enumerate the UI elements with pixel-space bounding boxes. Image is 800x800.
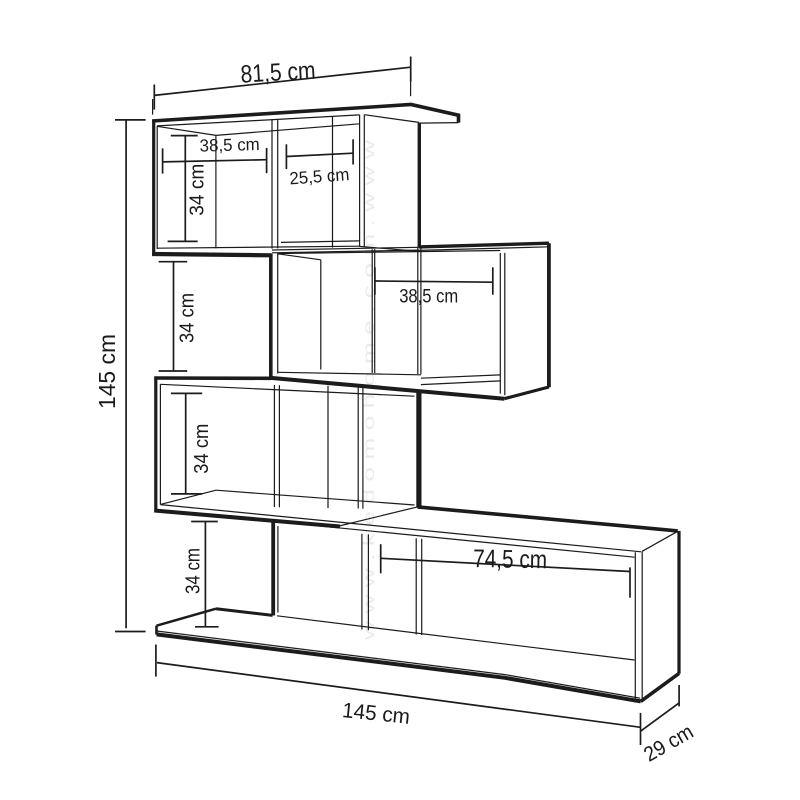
svg-text:81,5 cm: 81,5 cm	[240, 57, 316, 89]
svg-text:38,5 cm: 38,5 cm	[199, 134, 260, 156]
svg-text:34 cm: 34 cm	[177, 293, 199, 343]
svg-text:34 cm: 34 cm	[191, 424, 213, 474]
svg-text:74,5 cm: 74,5 cm	[473, 545, 547, 574]
svg-text:145 cm: 145 cm	[94, 334, 120, 409]
svg-text:38,5 cm: 38,5 cm	[399, 285, 458, 307]
svg-text:34 cm: 34 cm	[183, 548, 205, 594]
svg-text:34 cm: 34 cm	[187, 164, 209, 216]
svg-text:w w w . k e d o m o h o m e .: w w w . k e d o m o h o m e . c o m . w …	[361, 139, 378, 641]
